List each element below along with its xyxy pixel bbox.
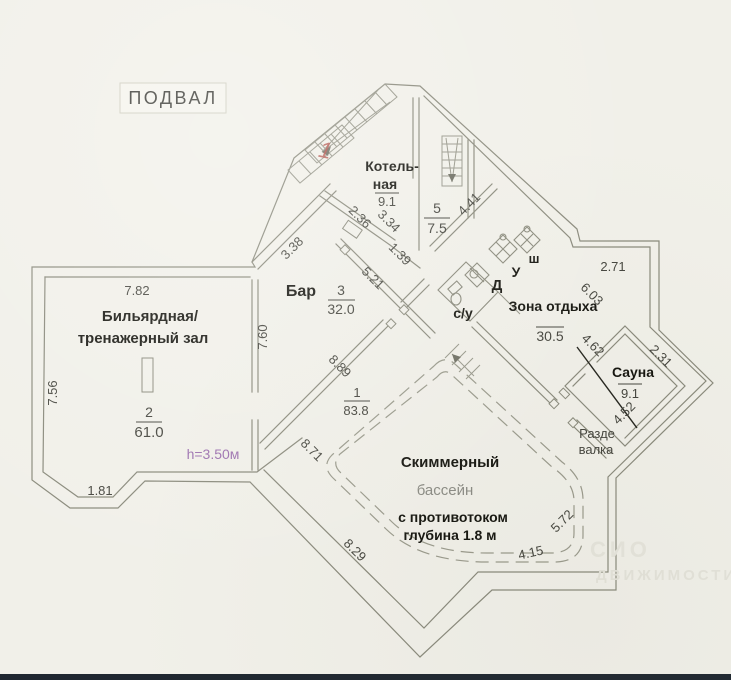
room-lounge-area: 30.5 (536, 328, 563, 344)
room-billiard-number: 2 (145, 404, 153, 420)
dim-7-60: 7.60 (255, 324, 270, 349)
watermark-line-1: СИО (590, 537, 651, 562)
room-labels: Бильярдная/ тренажерный зал 2 61.0 Бар 3… (78, 136, 655, 543)
ceiling-height-note: h=3.50м (187, 446, 240, 462)
room-wc-name: с/у (453, 305, 473, 321)
plan-title: ПОДВАЛ (120, 83, 226, 113)
room-sauna-area: 9.1 (621, 386, 639, 401)
red-revision-mark: 1 (316, 136, 334, 164)
room-billiard-name-1: Бильярдная/ (102, 308, 199, 325)
room-boiler-name-2: ная (373, 176, 397, 192)
plan-title-label: ПОДВАЛ (128, 88, 217, 108)
room-bar-name: Бар (286, 283, 316, 300)
shower-letter-d: Д (492, 277, 503, 294)
dim-5-72: 5.72 (548, 507, 577, 536)
shower-letter-sh: ш (529, 251, 540, 266)
dim-8-29: 8.29 (341, 536, 370, 565)
room-bar-number: 3 (337, 282, 345, 298)
room-billiard-name-2: тренажерный зал (78, 330, 209, 347)
dim-7-82: 7.82 (124, 283, 149, 298)
room-dressing-name-1: Разде (579, 426, 615, 441)
shower-letter-u: У (512, 264, 521, 280)
pool-label-1: Скиммерный (401, 454, 499, 471)
room-boiler-area: 9.1 (378, 194, 396, 209)
dim-8-71: 8.71 (298, 436, 327, 465)
watermark: СИО ДВИЖИМОСТИ (590, 537, 731, 584)
hall-steps (445, 344, 480, 379)
watermark-line-2: ДВИЖИМОСТИ (596, 567, 731, 584)
room-bar-area: 32.0 (327, 301, 354, 317)
secondary-staircase (442, 136, 462, 186)
room-5-number: 5 (433, 200, 441, 216)
dim-4-15: 4.15 (517, 543, 545, 563)
door-jambs (340, 220, 578, 427)
pool-label-3: с противотоком (398, 509, 508, 525)
room-lounge-name: Зона отдыха (509, 298, 598, 314)
column (142, 358, 153, 392)
dim-8-89: 8.89 (326, 352, 355, 381)
dim-1-39: 1.39 (386, 240, 415, 269)
pool-label-2: бассейн (417, 482, 474, 499)
dim-1-81: 1.81 (87, 483, 112, 498)
dim-3-38: 3.38 (278, 234, 307, 263)
sink-icon (470, 270, 478, 278)
dimension-labels: 7.82 7.56 1.81 7.60 3.38 2.36 3.34 1.39 … (45, 190, 675, 565)
room-hall-area: 83.8 (343, 403, 368, 418)
dim-7-56: 7.56 (45, 380, 60, 405)
room-sauna-name: Сауна (612, 364, 654, 380)
room-hall-number: 1 (353, 385, 360, 400)
floor-plan-drawing: ПОДВАЛ Бильярдная/ тренажерный зал 2 61.… (0, 0, 731, 680)
photo-edge (0, 674, 731, 680)
dim-2-71: 2.71 (600, 259, 625, 274)
room-boiler-name-1: Котель- (365, 158, 419, 174)
dim-5-21: 5.21 (359, 264, 388, 293)
room-5-area: 7.5 (427, 220, 447, 236)
pool-label-4: глубина 1.8 м (403, 527, 496, 543)
room-dressing-name-2: валка (579, 442, 615, 457)
floor-plan-page: ПОДВАЛ Бильярдная/ тренажерный зал 2 61.… (0, 0, 731, 680)
room-billiard-area: 61.0 (134, 424, 163, 441)
dim-4-41: 4.41 (455, 190, 484, 219)
dim-3-34: 3.34 (375, 207, 404, 236)
